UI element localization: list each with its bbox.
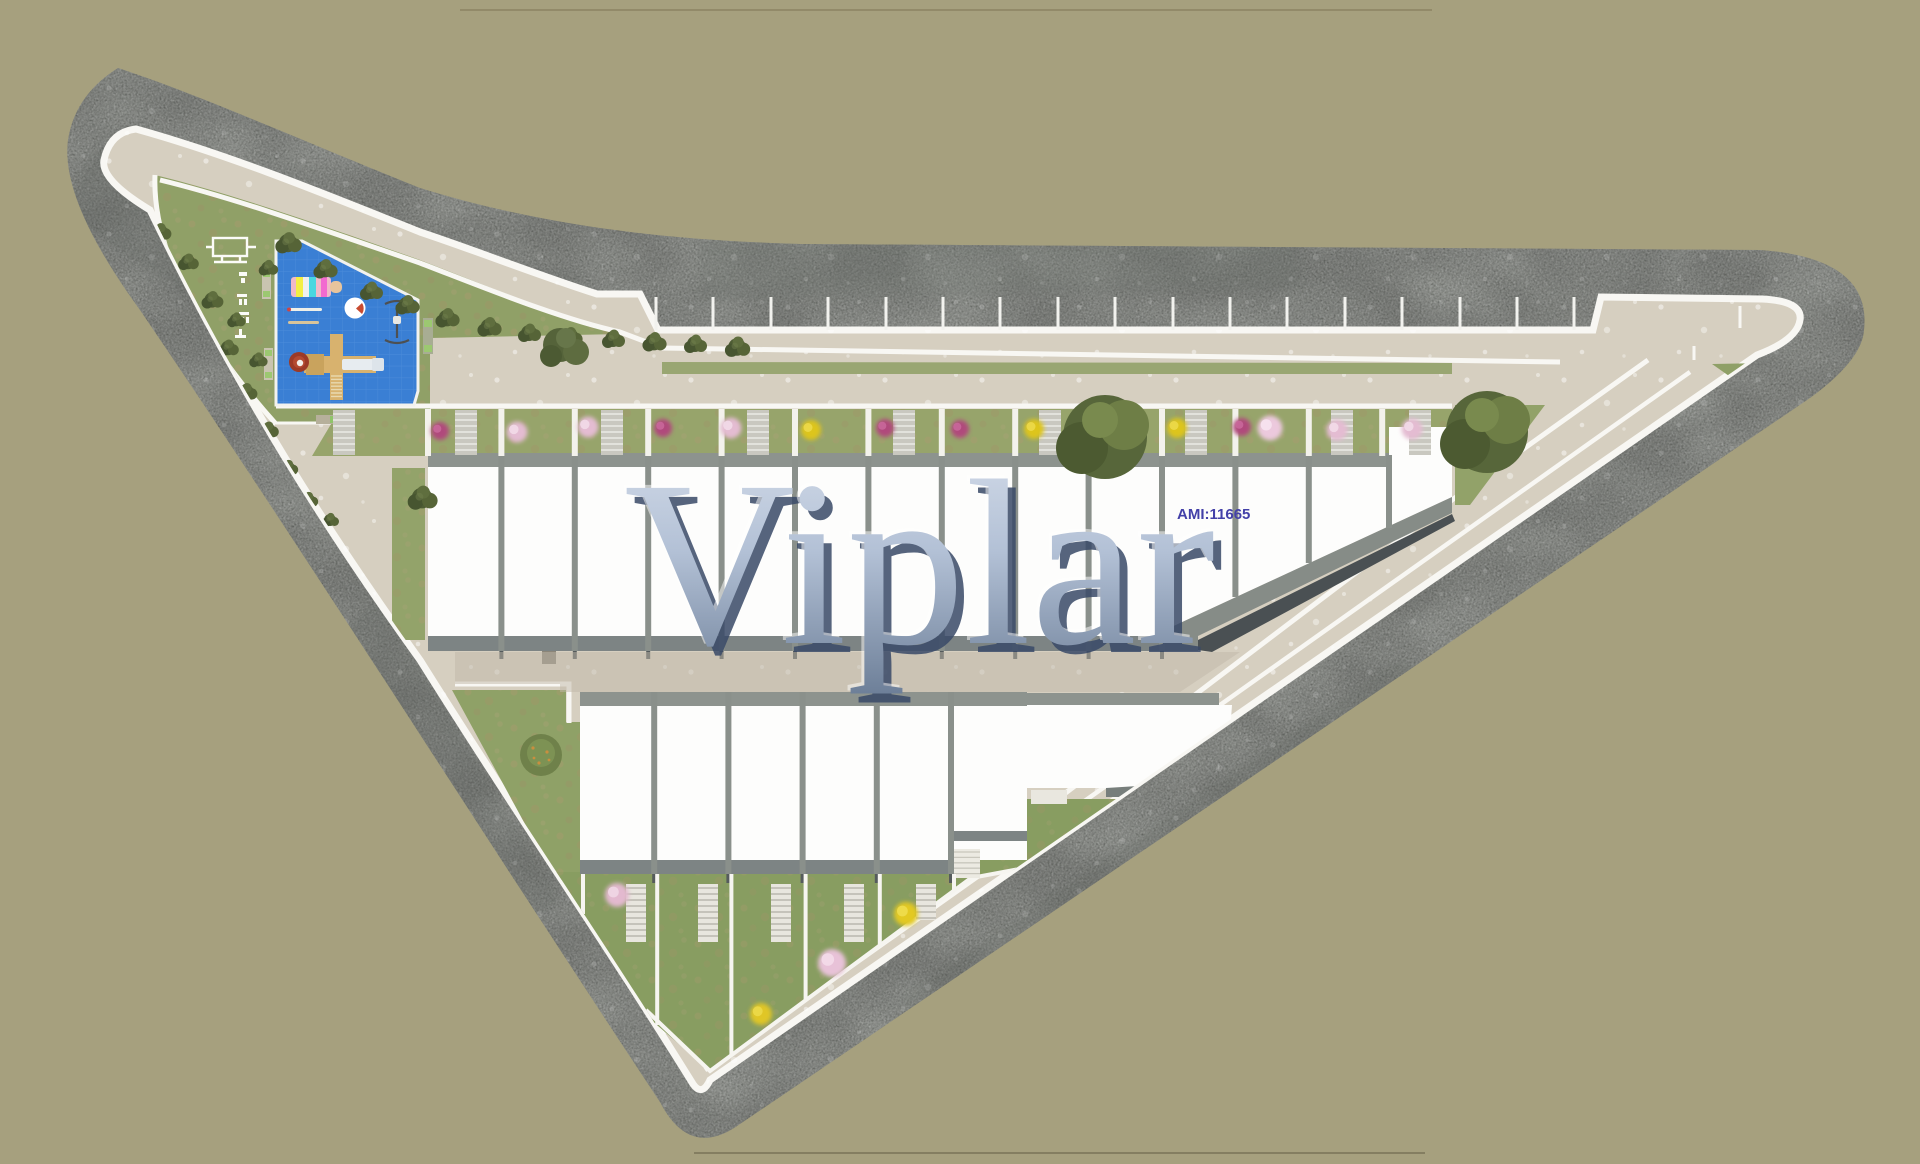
- svg-text:Viplar: Viplar: [624, 433, 1215, 695]
- svg-text:AMI:11665: AMI:11665: [1177, 506, 1250, 523]
